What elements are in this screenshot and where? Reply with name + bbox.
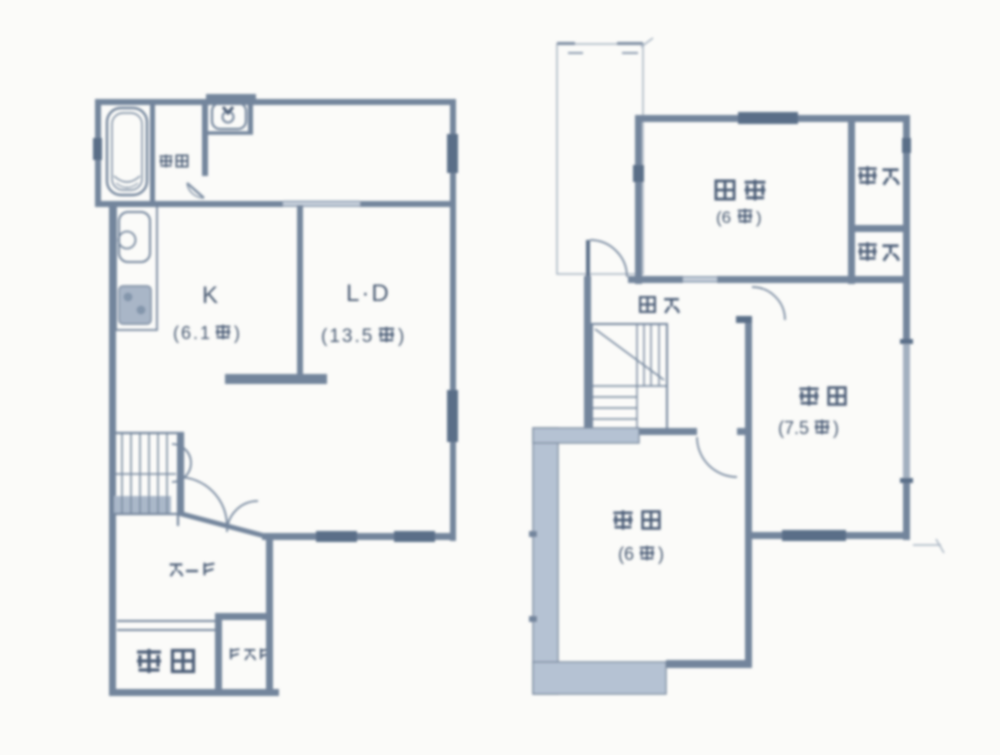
svg-text:(7.5: (7.5: [778, 418, 809, 438]
svg-text:): ): [398, 326, 404, 347]
svg-text:(13.5: (13.5: [321, 326, 374, 347]
svg-text:(6: (6: [618, 544, 634, 564]
svg-text:): ): [658, 544, 664, 564]
svg-text:): ): [833, 418, 839, 438]
svg-text:K: K: [202, 282, 218, 309]
svg-text:): ): [234, 323, 240, 343]
svg-text:(6: (6: [716, 208, 731, 227]
svg-text:(6.1: (6.1: [173, 323, 212, 343]
svg-text:L·D: L·D: [346, 280, 391, 307]
svg-text:): ): [756, 208, 762, 227]
